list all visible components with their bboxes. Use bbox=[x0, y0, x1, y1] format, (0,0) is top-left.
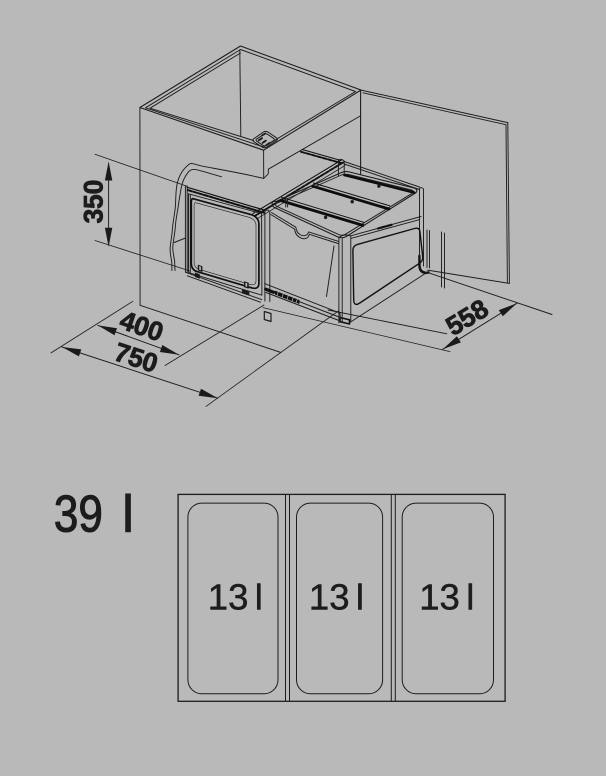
svg-text:39: 39 bbox=[54, 486, 103, 544]
svg-text:l: l bbox=[356, 577, 364, 618]
svg-text:l: l bbox=[466, 577, 474, 618]
svg-text:13: 13 bbox=[419, 577, 460, 618]
svg-text:13: 13 bbox=[208, 577, 249, 618]
svg-text:13: 13 bbox=[309, 577, 350, 618]
svg-text:350: 350 bbox=[79, 180, 109, 224]
svg-text:l: l bbox=[122, 486, 134, 544]
svg-text:l: l bbox=[255, 577, 263, 618]
